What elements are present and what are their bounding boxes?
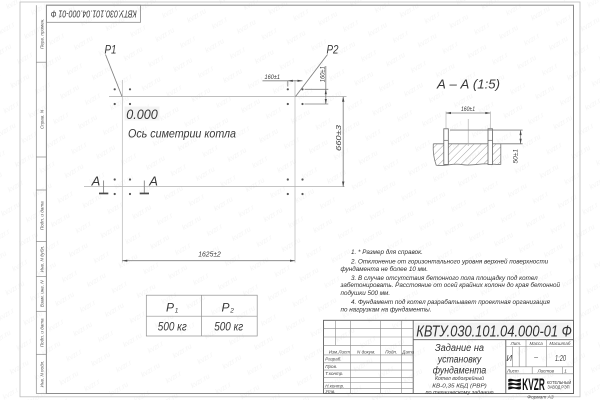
svg-text:160±1: 160±1 <box>265 74 281 81</box>
svg-text:1. * Размер для справок.: 1. * Размер для справок. <box>351 248 423 256</box>
svg-text:фундамента не более 10 мм.: фундамента не более 10 мм. <box>341 265 429 273</box>
svg-text:Подп.: Подп. <box>385 350 397 355</box>
svg-text:Изм.Лист: Изм.Лист <box>329 350 350 355</box>
svg-text:Утв.: Утв. <box>325 389 335 394</box>
svg-text:Пров.: Пров. <box>325 364 337 369</box>
svg-text:Инв. N дубл.: Инв. N дубл. <box>40 246 45 273</box>
svg-text:А: А <box>91 173 101 188</box>
svg-text:фундамента: фундамента <box>433 364 487 376</box>
svg-text:1625±2: 1625±2 <box>198 251 221 258</box>
svg-text:КВ-0,35 КБД (РВР): КВ-0,35 КБД (РВР) <box>432 383 487 389</box>
svg-text:N докум.: N докум. <box>357 350 376 355</box>
svg-text:КВТУ.030.101.04.000-01 Ф: КВТУ.030.101.04.000-01 Ф <box>51 8 137 19</box>
svg-text:Инв. N подл.: Инв. N подл. <box>40 360 45 387</box>
svg-text:Лист: Лист <box>506 369 519 374</box>
svg-text:660±3: 660±3 <box>334 124 343 151</box>
svg-text:Р1: Р1 <box>105 45 117 57</box>
svg-text:50±1: 50±1 <box>513 149 520 164</box>
svg-text:Масса: Масса <box>529 341 543 346</box>
svg-text:Р2: Р2 <box>327 45 340 57</box>
svg-text:Задание на: Задание на <box>435 343 484 354</box>
svg-text:Т.контр.: Т.контр. <box>325 371 343 376</box>
svg-text:–: – <box>533 354 538 361</box>
svg-text:Котел водогрейный: Котел водогрейный <box>435 375 484 382</box>
svg-text:0.000: 0.000 <box>126 106 158 122</box>
svg-text:Ось симетрии котла: Ось симетрии котла <box>128 126 236 140</box>
svg-text:Р: Р <box>222 300 230 314</box>
svg-text:И: И <box>506 354 512 363</box>
svg-text:KVZR: KVZR <box>522 376 545 394</box>
svg-text:1: 1 <box>175 308 179 315</box>
svg-text:Лит.: Лит. <box>510 341 522 346</box>
svg-text:Листов: Листов <box>537 369 555 374</box>
svg-text:подушки 500 мм.: подушки 500 мм. <box>341 289 391 297</box>
svg-text:ЗАВОД РЭП: ЗАВОД РЭП <box>548 385 570 390</box>
svg-text:500 кг: 500 кг <box>214 319 243 333</box>
svg-text:А: А <box>148 173 158 188</box>
svg-text:Справ. N: Справ. N <box>40 109 45 129</box>
svg-text:160±1: 160±1 <box>461 106 475 113</box>
svg-text:1:20: 1:20 <box>555 354 566 363</box>
svg-text:Разраб.: Разраб. <box>325 356 341 361</box>
svg-text:2. Отклонение от горизонтально: 2. Отклонение от горизонтального уровня … <box>350 257 549 265</box>
svg-text:Формат А3: Формат А3 <box>527 395 554 400</box>
svg-text:А – А (1:5): А – А (1:5) <box>436 77 500 91</box>
svg-text:Подп. и дата: Подп. и дата <box>40 318 45 347</box>
svg-text:4. Фундамент под котел разраба: 4. Фундамент под котел разрабатывает про… <box>351 298 550 306</box>
svg-text:КВТУ.030.101.04.000-01 Ф: КВТУ.030.101.04.000-01 Ф <box>416 324 572 341</box>
svg-text:Перв. примен.: Перв. примен. <box>40 18 45 49</box>
svg-text:установку: установку <box>437 354 482 365</box>
svg-text:Н.контр.: Н.контр. <box>325 383 344 388</box>
svg-text:2: 2 <box>229 308 234 315</box>
svg-text:500 кг: 500 кг <box>158 319 187 333</box>
svg-text:Р: Р <box>166 300 174 314</box>
svg-text:Масштаб: Масштаб <box>549 341 570 346</box>
svg-text:Дата: Дата <box>401 350 414 355</box>
svg-text:Подп. и дата: Подп. и дата <box>40 201 45 230</box>
svg-text:по нагрузкам на фундаменты.: по нагрузкам на фундаменты. <box>341 306 432 314</box>
svg-text:3. В случае отсутствия бетонно: 3. В случае отсутствия бетонного пола пл… <box>351 274 538 282</box>
svg-text:забетонировать. Расстояние от: забетонировать. Расстояние от осей крайн… <box>340 281 561 289</box>
svg-text:Взам. инв. N: Взам. инв. N <box>40 280 45 307</box>
svg-text:по техническому заданию: по техническому заданию <box>426 390 495 396</box>
